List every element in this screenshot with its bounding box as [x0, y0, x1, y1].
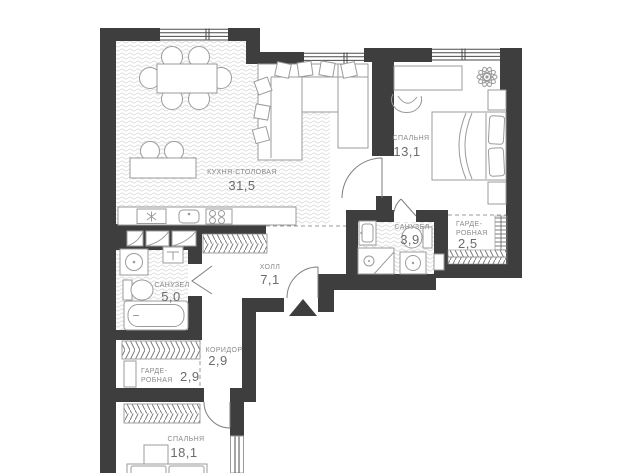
nightstand-icon: [488, 182, 506, 204]
wardrobe1-area: 2,5: [458, 236, 478, 251]
fridge-icon: [137, 209, 166, 224]
dining-table-icon: [157, 64, 217, 93]
bedroom1-window-icon: [432, 48, 500, 61]
bedroom1-door-icon: [342, 158, 382, 198]
desk-icon: [394, 66, 462, 90]
bed-icon: [127, 464, 207, 473]
washbasin-icon: [359, 221, 376, 245]
toilet-icon: [123, 280, 153, 300]
bedroom2-area: 18,1: [170, 445, 197, 460]
wardrobe1-label-line1: ГАРДЕ-: [456, 221, 483, 228]
wardrobe2-label-line1: ГАРДЕ-: [141, 368, 168, 375]
bedroom2-window-icon: [231, 436, 244, 473]
shelf-niche-icon: [434, 254, 444, 270]
bedroom2-label: СПАЛЬНЯ: [167, 436, 204, 443]
bathroom1-area: 3,9: [400, 232, 420, 247]
wardrobe2-label-line2: РОБНАЯ: [141, 377, 173, 384]
bathtub-icon: [124, 301, 188, 330]
bedroom1-area: 13,1: [393, 144, 420, 159]
kitchen-window-icon: [160, 28, 228, 41]
bedroom1-label: СПАЛЬНЯ: [392, 135, 429, 142]
floor-plan-svg: КУХНЯ-СТОЛОВАЯ 31,5 СПАЛЬНЯ 13,1 САНУЗЕЛ…: [0, 0, 640, 473]
washing-machine-icon: [120, 249, 148, 275]
shower-icon: [358, 248, 394, 274]
nightstand-icon: [488, 90, 506, 110]
entrance-door-icon: [287, 267, 318, 298]
bathroom1-label: САНУЗЕЛ: [394, 224, 429, 231]
bathroom2-label: САНУЗЕЛ: [154, 282, 189, 289]
floor-plan: КУХНЯ-СТОЛОВАЯ 31,5 СПАЛЬНЯ 13,1 САНУЗЕЛ…: [0, 0, 640, 473]
hall-area: 7,1: [260, 272, 280, 287]
washbasin-icon: [163, 247, 183, 263]
bedroom2-closet-icon: [124, 404, 200, 423]
armchair-icon: [392, 94, 422, 113]
wardrobe2-area: 2,9: [180, 369, 200, 384]
kitchen-dining-label: КУХНЯ-СТОЛОВАЯ: [207, 169, 277, 176]
double-bed-icon: [432, 112, 506, 180]
bathroom1-door-icon: [394, 199, 416, 216]
hall-label: ХОЛЛ: [260, 264, 281, 271]
shelf-icon: [124, 361, 136, 387]
cabinet-doors-icon: [127, 231, 196, 246]
bedroom2-door-icon: [204, 402, 230, 428]
stove-icon: [206, 209, 232, 224]
washing-machine-icon: [400, 252, 426, 274]
sink-icon: [179, 210, 199, 223]
entrance-arrow-icon: [289, 299, 317, 316]
plant-icon: [477, 66, 497, 87]
hall-closet-icon: [203, 234, 267, 253]
bathroom2-door-icon: [192, 266, 212, 294]
kitchen-dining-area: 31,5: [228, 178, 255, 193]
corridor-area: 2,9: [208, 353, 228, 368]
bathroom2-area: 5,0: [161, 289, 181, 304]
kitchen-island-icon: [130, 158, 196, 178]
